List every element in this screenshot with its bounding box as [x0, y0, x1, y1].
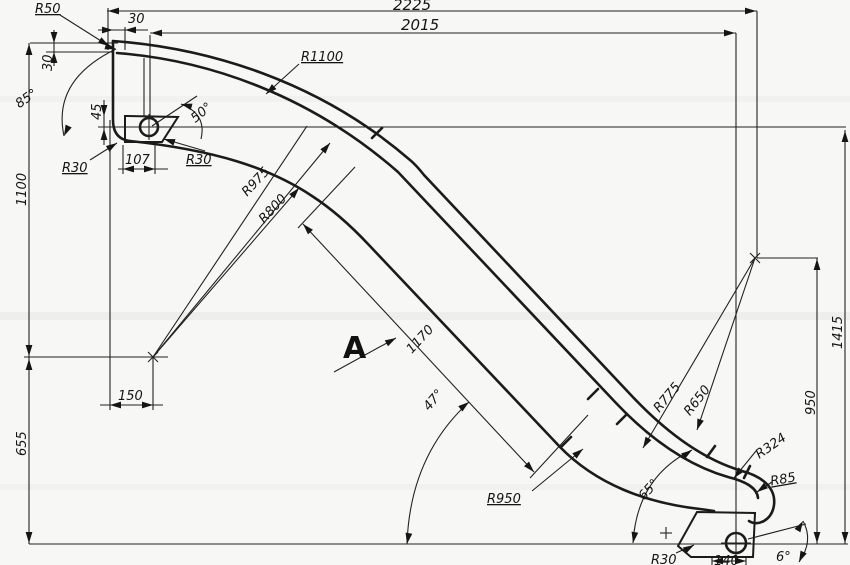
- slide-surface-line-path: [117, 53, 758, 498]
- label-angle-85: 85°: [13, 86, 40, 112]
- label-angle-47: 47°: [421, 387, 447, 414]
- label-dim-30-left: 30: [41, 54, 56, 71]
- label-dim-30-top: 30: [128, 12, 145, 27]
- slide-profile-drawing: R50 30 2225 2015 R1100 30 85° 45 50° R30…: [0, 0, 850, 565]
- label-dim-107: 107: [125, 153, 151, 168]
- radius-ray-upper: [153, 126, 307, 357]
- label-r324: R324: [753, 431, 789, 463]
- radius-ray-r650: [697, 258, 755, 430]
- label-dim-45: 45: [90, 103, 105, 120]
- ext-1170-top: [298, 167, 355, 228]
- technical-drawing-canvas: R50 30 2225 2015 R1100 30 85° 45 50° R30…: [0, 0, 850, 565]
- dimension-lines: [24, 8, 848, 565]
- label-r30-bottom: R30: [651, 553, 677, 565]
- label-angle-6: 6°: [776, 550, 791, 565]
- arc-85deg: [62, 49, 116, 136]
- label-dim-1170: 1170: [404, 322, 438, 356]
- label-angle-65: 65°: [636, 477, 663, 504]
- label-r30-top-right: R30: [186, 153, 212, 168]
- label-r650: R650: [681, 383, 714, 419]
- label-r775: R775: [651, 380, 684, 416]
- labels: R50 30 2225 2015 R1100 30 85° 45 50° R30…: [13, 0, 846, 565]
- label-dim-1100: 1100: [15, 173, 30, 206]
- label-dim-150: 150: [118, 389, 143, 404]
- mount-plates: [125, 116, 755, 557]
- label-r950: R950: [487, 492, 521, 507]
- label-view-a: A: [343, 331, 367, 366]
- radius-ray-r975: [153, 143, 330, 357]
- ray-6deg: [748, 524, 806, 539]
- top-mount-plate: [125, 116, 178, 142]
- arc-47deg: [407, 402, 469, 544]
- label-dim-140: 140: [714, 554, 739, 565]
- label-r30-top-left: R30: [62, 161, 88, 176]
- label-dim-2015: 2015: [401, 16, 439, 34]
- arrowheads: [26, 8, 849, 565]
- slide-left-end-cap: [113, 41, 130, 141]
- label-r50: R50: [35, 2, 61, 17]
- label-dim-1415: 1415: [831, 316, 846, 349]
- label-dim-950: 950: [804, 390, 819, 415]
- label-dim-655: 655: [15, 431, 30, 456]
- label-r975: R975: [239, 165, 273, 200]
- label-dim-2225: 2225: [393, 0, 431, 14]
- label-r1100: R1100: [301, 50, 343, 65]
